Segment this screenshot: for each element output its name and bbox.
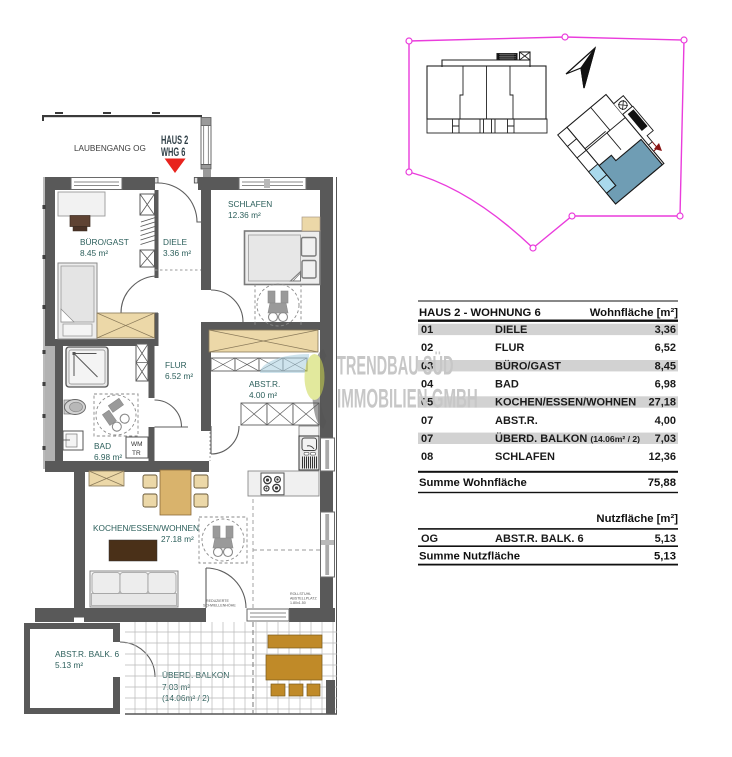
svg-text:BÜRO/GAST: BÜRO/GAST	[495, 359, 561, 372]
svg-text:27,18: 27,18	[648, 397, 676, 409]
svg-text:5,13: 5,13	[655, 533, 676, 545]
svg-text:DIELE: DIELE	[495, 324, 527, 336]
svg-text:HAUS 2 - WOHNUNG 6: HAUS 2 - WOHNUNG 6	[419, 307, 541, 319]
svg-text:DIELE: DIELE	[163, 237, 187, 247]
svg-text:FLUR: FLUR	[495, 342, 524, 354]
svg-text:ÜBERD. BALKON: ÜBERD. BALKON	[162, 670, 229, 680]
svg-text:ROLLSTUHL: ROLLSTUHL	[290, 592, 311, 596]
svg-text:SCHWELLENHÖHE: SCHWELLENHÖHE	[203, 604, 236, 608]
svg-text:6,98: 6,98	[655, 379, 676, 391]
svg-text:5.13 m²: 5.13 m²	[55, 660, 83, 670]
svg-text:Nutzfläche [m²]: Nutzfläche [m²]	[596, 513, 678, 525]
svg-text:7,03: 7,03	[655, 433, 676, 445]
svg-text:75,88: 75,88	[648, 477, 676, 489]
svg-text:8,45: 8,45	[655, 360, 676, 372]
svg-text:FLUR: FLUR	[165, 360, 187, 370]
svg-text:KOCHEN/ESSEN/WOHNEN: KOCHEN/ESSEN/WOHNEN	[93, 523, 199, 533]
svg-text:8.45 m²: 8.45 m²	[80, 248, 108, 258]
svg-text:Summe Nutzfläche: Summe Nutzfläche	[419, 551, 520, 563]
svg-text:SCHLAFEN: SCHLAFEN	[495, 451, 555, 463]
svg-text:Wohnfläche [m²]: Wohnfläche [m²]	[590, 307, 679, 319]
svg-text:4,00: 4,00	[655, 415, 676, 427]
svg-text:REDUZIERTE: REDUZIERTE	[206, 599, 229, 603]
svg-text:27.18 m²: 27.18 m²	[161, 534, 194, 544]
svg-text:LAUBENGANG OG: LAUBENGANG OG	[74, 144, 146, 153]
svg-text:1.80x1.50: 1.80x1.50	[290, 601, 306, 605]
svg-text:ABST.R.: ABST.R.	[495, 415, 538, 427]
svg-text:5,13: 5,13	[654, 551, 676, 563]
svg-text:07: 07	[421, 415, 433, 427]
svg-text:6.52 m²: 6.52 m²	[165, 371, 193, 381]
svg-text:SCHLAFEN: SCHLAFEN	[228, 199, 272, 209]
svg-text:ABSTELLPLATZ: ABSTELLPLATZ	[290, 597, 318, 601]
svg-text:WM: WM	[131, 441, 143, 448]
svg-text:12.36 m²: 12.36 m²	[228, 210, 261, 220]
svg-text:TRENDBAU SÜD: TRENDBAU SÜD	[337, 350, 454, 381]
svg-text:IMMOBILIEN GMBH: IMMOBILIEN GMBH	[337, 383, 478, 414]
svg-text:ÜBERD. BALKON (14.06m² / 2): ÜBERD. BALKON (14.06m² / 2)	[495, 432, 640, 445]
svg-text:08: 08	[421, 451, 433, 463]
svg-text:OG: OG	[421, 533, 438, 545]
svg-text:TR: TR	[132, 450, 141, 457]
svg-text:3,36: 3,36	[655, 324, 676, 336]
svg-text:6,52: 6,52	[655, 342, 676, 354]
svg-text:BAD: BAD	[495, 379, 519, 391]
svg-text:Summe Wohnfläche: Summe Wohnfläche	[419, 477, 527, 489]
svg-text:WHG 6: WHG 6	[161, 146, 186, 159]
svg-text:6.98 m²: 6.98 m²	[94, 452, 122, 462]
svg-text:BAD: BAD	[94, 441, 111, 451]
svg-text:KOCHEN/ESSEN/WOHNEN: KOCHEN/ESSEN/WOHNEN	[495, 397, 636, 409]
svg-text:07: 07	[421, 433, 433, 445]
svg-text:12,36: 12,36	[648, 451, 676, 463]
svg-text:4.00 m²: 4.00 m²	[249, 390, 277, 400]
svg-text:ABST.R.: ABST.R.	[249, 379, 280, 389]
svg-text:01: 01	[421, 324, 433, 336]
svg-text:3.36 m²: 3.36 m²	[163, 248, 191, 258]
svg-text:ABST.R. BALK. 6: ABST.R. BALK. 6	[495, 533, 584, 545]
svg-text:BÜRO/GAST: BÜRO/GAST	[80, 237, 129, 247]
svg-text:ABST.R. BALK. 6: ABST.R. BALK. 6	[55, 649, 119, 659]
